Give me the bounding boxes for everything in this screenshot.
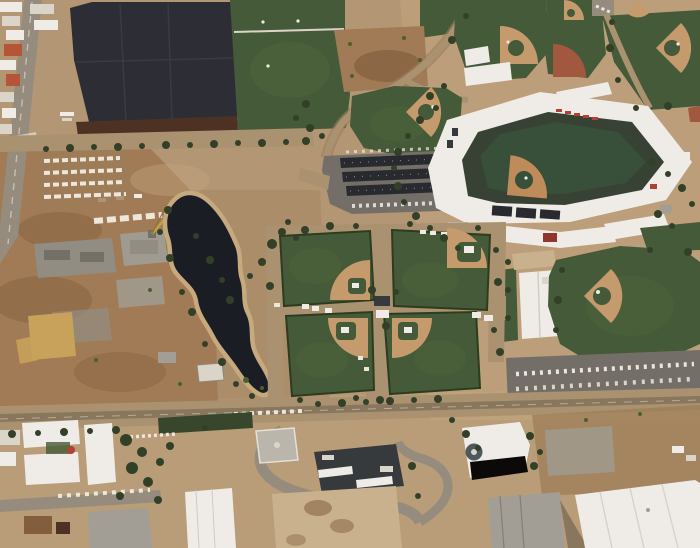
aerial-photo [0,0,700,548]
atmospheric-haze [0,0,700,548]
aerial-scene [0,0,700,548]
